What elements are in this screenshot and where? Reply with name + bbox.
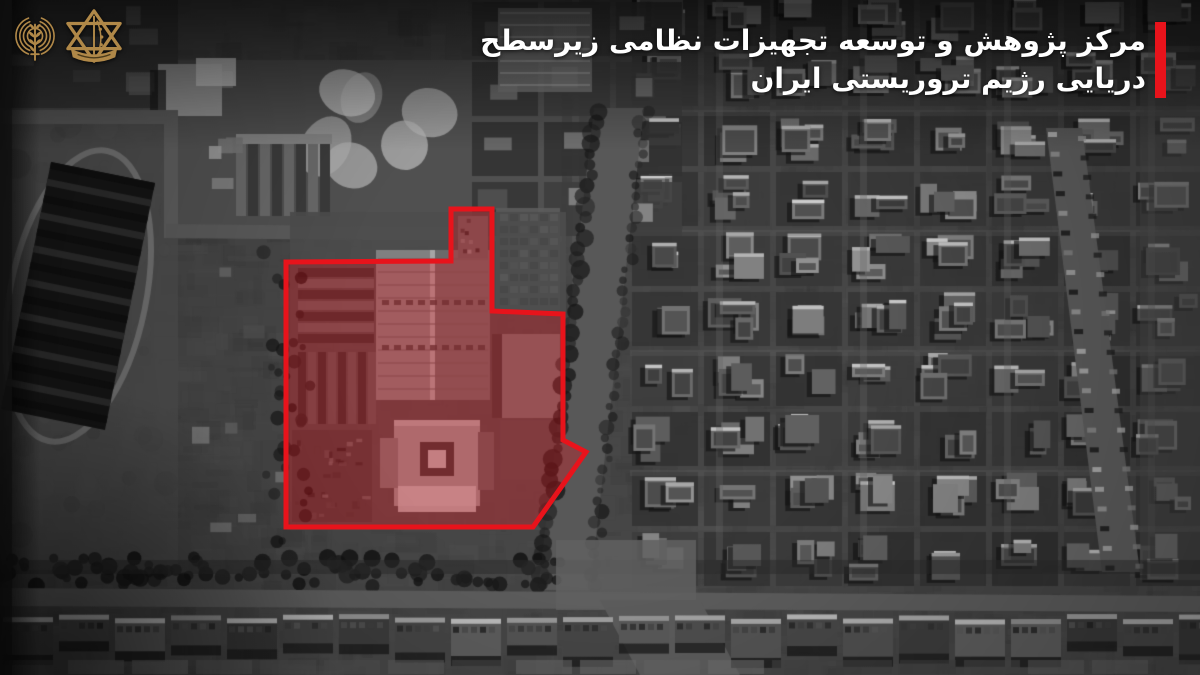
headline-block: مرکز پژوهش و توسعه تجهیزات نظامی زیرسطح …	[480, 22, 1166, 98]
headline-accent-bar	[1155, 22, 1166, 98]
headline-line-2: دریایی رژیم تروریستی ایران	[480, 60, 1146, 98]
idf-star-of-david-emblem-icon	[62, 8, 126, 66]
headline-text: مرکز پژوهش و توسعه تجهیزات نظامی زیرسطح …	[480, 22, 1146, 98]
graphic-root: مرکز پژوهش و توسعه تجهیزات نظامی زیرسطح …	[0, 0, 1200, 675]
logo-bar	[14, 8, 126, 66]
headline-line-1: مرکز پژوهش و توسعه تجهیزات نظامی زیرسطح	[480, 22, 1146, 60]
radio-waves-olive-branch-emblem-icon	[14, 10, 56, 64]
satellite-aerial-image	[0, 0, 1200, 675]
